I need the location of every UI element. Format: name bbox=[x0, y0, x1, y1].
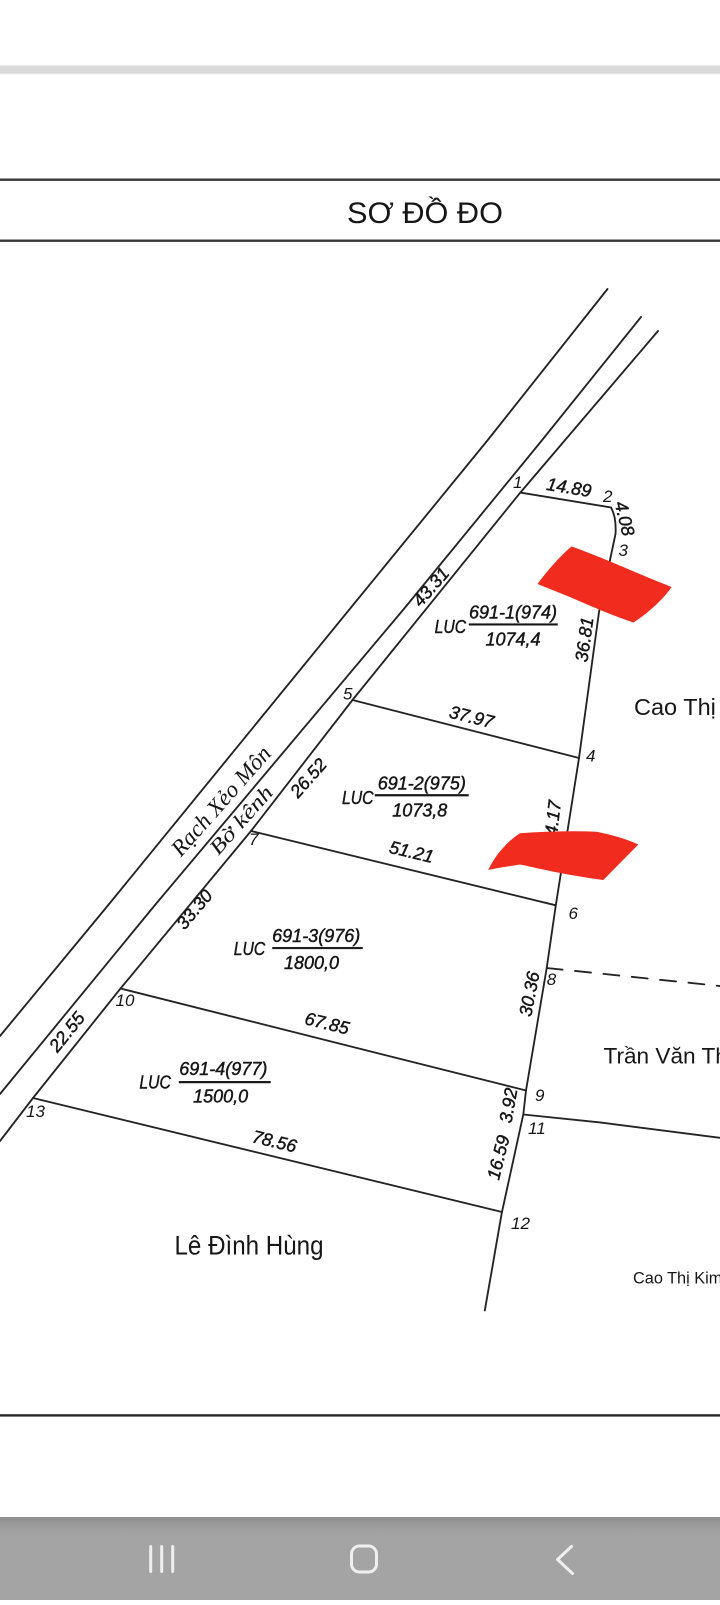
svg-text:9: 9 bbox=[535, 1086, 545, 1105]
svg-text:691-3(976): 691-3(976) bbox=[272, 926, 360, 946]
svg-text:Trần Văn Th: Trần Văn Th bbox=[604, 1043, 720, 1068]
svg-text:LUC: LUC bbox=[139, 1073, 171, 1093]
svg-text:1: 1 bbox=[513, 473, 522, 492]
svg-text:6: 6 bbox=[569, 904, 579, 923]
svg-text:1500,0: 1500,0 bbox=[193, 1087, 248, 1107]
svg-text:67.85: 67.85 bbox=[303, 1008, 352, 1038]
svg-text:10: 10 bbox=[116, 991, 135, 1010]
svg-text:51.21: 51.21 bbox=[387, 837, 435, 867]
svg-text:1800,0: 1800,0 bbox=[284, 953, 339, 973]
svg-text:691-1(974): 691-1(974) bbox=[469, 603, 557, 623]
svg-text:11: 11 bbox=[528, 1119, 546, 1138]
svg-text:8: 8 bbox=[547, 970, 557, 989]
svg-text:3: 3 bbox=[619, 541, 629, 560]
svg-text:SƠ ĐỒ ĐO: SƠ ĐỒ ĐO bbox=[347, 196, 503, 230]
svg-text:5: 5 bbox=[343, 685, 353, 704]
svg-text:12: 12 bbox=[511, 1214, 530, 1233]
svg-text:Cao Thị C: Cao Thị C bbox=[634, 694, 720, 720]
svg-text:4: 4 bbox=[586, 747, 595, 766]
svg-text:3.92: 3.92 bbox=[496, 1087, 522, 1125]
svg-text:1073,8: 1073,8 bbox=[392, 801, 447, 821]
svg-text:7: 7 bbox=[249, 830, 259, 849]
svg-text:33.30: 33.30 bbox=[172, 886, 216, 933]
svg-text:691-2(975): 691-2(975) bbox=[378, 773, 466, 793]
svg-text:LUC: LUC bbox=[234, 939, 266, 959]
svg-text:37.97: 37.97 bbox=[447, 702, 497, 733]
svg-text:16.59: 16.59 bbox=[483, 1133, 513, 1182]
svg-text:1074,4: 1074,4 bbox=[485, 630, 540, 650]
svg-text:13: 13 bbox=[26, 1102, 45, 1121]
svg-text:691-4(977): 691-4(977) bbox=[179, 1059, 267, 1079]
svg-text:LUC: LUC bbox=[435, 617, 467, 637]
svg-text:4.17: 4.17 bbox=[541, 798, 565, 836]
svg-text:Cao Thị Kim H: Cao Thị Kim H bbox=[633, 1270, 720, 1288]
svg-text:Lê Đình Hùng: Lê Đình Hùng bbox=[175, 1231, 324, 1261]
svg-text:LUC: LUC bbox=[342, 788, 374, 808]
